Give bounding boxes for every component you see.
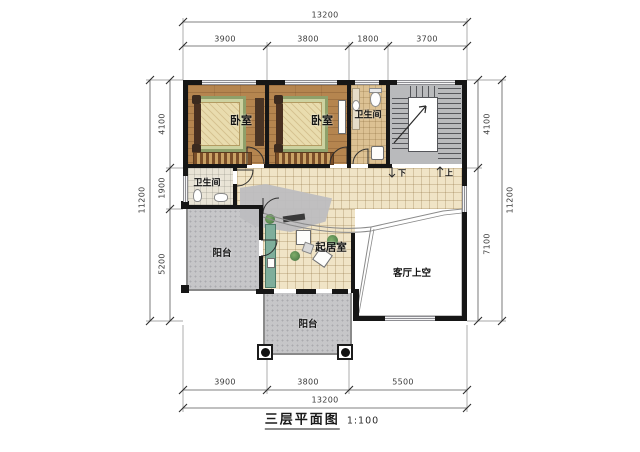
dim-left-seg: 5200 (158, 253, 167, 275)
stair-label-up: 上 (445, 168, 453, 179)
dim-left-total: 11200 (138, 187, 147, 214)
hall-railing-curve (263, 213, 371, 232)
room-label-void: 客厅上空 (393, 265, 431, 279)
dim-right-seg: 7100 (483, 233, 492, 255)
window (355, 80, 379, 85)
plan-title: 三层平面图 1:100 (265, 409, 379, 430)
wall-segment (332, 289, 348, 294)
window (462, 186, 467, 212)
wall-segment (368, 164, 392, 168)
dim-top-seg: 3800 (297, 35, 319, 44)
wall-segment (259, 256, 263, 293)
wall-segment (183, 205, 263, 209)
window (183, 176, 188, 202)
wall-segment (296, 289, 316, 294)
dim-bottom-seg: 3900 (214, 378, 236, 387)
room-label-bedroom-left: 卧室 (230, 112, 252, 128)
dim-top-seg: 1800 (357, 35, 379, 44)
room-label-balcony-left: 阳台 (212, 245, 231, 259)
room-label-bathroom-top: 卫生间 (354, 108, 381, 121)
dim-left-seg: 1900 (158, 177, 167, 199)
dim-top-seg: 3700 (416, 35, 438, 44)
window (397, 80, 455, 85)
room-label-balcony-bottom: 阳台 (298, 316, 317, 330)
wall-segment (265, 85, 269, 168)
wall-segment (351, 233, 355, 293)
plan-scale: 1:100 (347, 416, 379, 427)
floor-plan-canvas: 卧室 卧室 卫生间 卫生间 起居室 客厅上空 阳台 阳台 下 上 13200 3… (0, 0, 640, 452)
void-region (357, 209, 462, 316)
wall-segment (264, 164, 330, 168)
wall-segment (233, 168, 237, 171)
dim-top-seg: 3900 (214, 35, 236, 44)
plan-title-text: 三层平面图 (265, 409, 340, 430)
dim-right-seg: 4100 (483, 113, 492, 135)
window (285, 80, 337, 85)
wall-corner-stub (181, 201, 189, 209)
room-label-bedroom-mid: 卧室 (311, 112, 333, 128)
wall-segment (386, 85, 390, 168)
dim-right-total: 11200 (506, 187, 515, 214)
room-label-bathroom-left: 卫生间 (193, 176, 220, 189)
wall-segment (259, 209, 263, 240)
wall-segment (183, 164, 247, 168)
window (385, 316, 435, 321)
wall-segment (256, 289, 274, 294)
dim-left-seg: 4100 (158, 113, 167, 135)
plan-linework (0, 0, 640, 452)
dim-top-total: 13200 (312, 11, 339, 20)
dim-bottom-total: 13200 (312, 396, 339, 405)
dim-bottom-seg: 5500 (392, 378, 414, 387)
wall-corner-stub (181, 285, 189, 293)
column (337, 344, 353, 360)
stair-arrow (394, 106, 426, 143)
window (202, 80, 256, 85)
room-label-living: 起居室 (315, 240, 347, 255)
wall-segment (347, 85, 351, 168)
stair-label-down: 下 (398, 168, 406, 179)
dim-bottom-seg: 3800 (297, 378, 319, 387)
column (257, 344, 273, 360)
